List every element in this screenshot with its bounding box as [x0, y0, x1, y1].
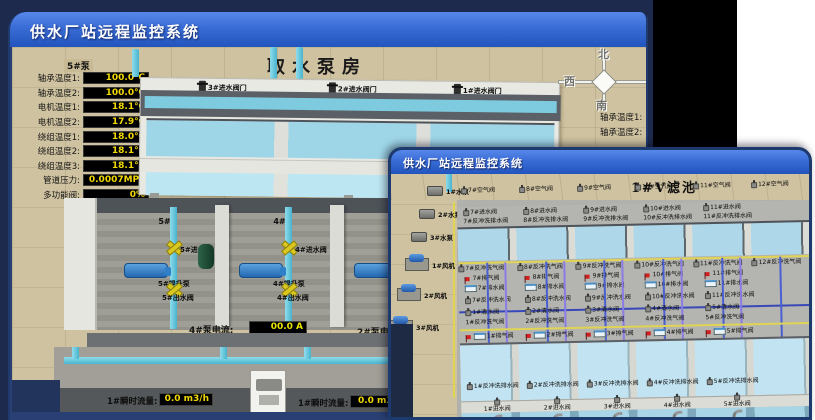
valve-item[interactable]: 5#清水阀: [705, 303, 765, 311]
outlet-valve-label: 5#出水阀: [162, 293, 194, 303]
valve-icon: [494, 400, 500, 406]
alarm-flag-icon: [585, 274, 590, 278]
valve-label: 9#空气阀: [584, 184, 611, 192]
alarm-flag-icon: [706, 330, 711, 334]
valve-label: 4#反冲洗气阀: [645, 315, 684, 323]
valve-item[interactable]: 10#排气阀: [644, 270, 704, 278]
valve-label: 7#进水阀: [470, 209, 497, 217]
pump-riser-pipe: [285, 207, 292, 329]
valve-icon: [458, 266, 464, 272]
water-pump-label: 3#水泵: [430, 232, 453, 242]
valve-icon: [645, 294, 651, 300]
valve-item[interactable]: 11#反冲洗排水阀: [703, 212, 763, 220]
panel-row: 绕组温度2: 18.1℃: [16, 144, 154, 159]
valve-label: 1#反冲洗排水阀: [474, 382, 519, 390]
valve-icon: [703, 205, 709, 211]
valve-item[interactable]: 2#清水阀: [525, 307, 585, 315]
water-tank-icon: [534, 332, 546, 339]
desktop: 供水厂站远程监控系统 取水泵房 5#泵 轴承温度1: 100.0℃ 轴承温度2:…: [0, 0, 815, 420]
valve-icon: [554, 398, 560, 404]
valve-icon: [519, 186, 525, 192]
panel-row-label: 管道压力:: [16, 174, 80, 186]
valve-item[interactable]: 8#排气阀: [524, 273, 584, 281]
motor-icon: [411, 232, 427, 242]
blower-unit[interactable]: 1#风机: [405, 258, 455, 271]
back-scene-title: 取水泵房: [267, 53, 367, 79]
air-manifold-pipe: [453, 202, 455, 398]
valve-icon: [634, 262, 640, 268]
valve-item[interactable]: 3#清水阀: [585, 305, 645, 313]
alarm-flag-icon: [525, 275, 530, 279]
valve-item[interactable]: 10#空气阀: [635, 182, 693, 190]
right-bearing-temp2-label: 轴承温度2:: [600, 126, 642, 138]
valve-label: 5#清水阀: [712, 303, 739, 311]
backwash-water-row-mid: 7#反冲洗水阀 8#反冲洗水阀 9#反冲洗水阀 10#反冲洗水阀 11#反冲洗水…: [465, 291, 765, 304]
valve-label: 8#反冲洗气阀: [524, 263, 563, 271]
alarm-flag-icon: [526, 333, 531, 337]
valve-item[interactable]: 1#排气阀: [466, 332, 526, 340]
valve-item[interactable]: 9#反冲洗排水阀: [583, 214, 643, 222]
valve-icon: [576, 263, 582, 269]
pump-riser-pipe: [170, 207, 177, 329]
valve-label: 2#排气阀: [547, 331, 574, 339]
valve-label: 8#排水阀: [538, 283, 565, 291]
elbow-pipe-icon: [612, 412, 622, 420]
valve-item[interactable]: 8#反冲洗水阀: [525, 295, 585, 303]
back-window-title: 供水厂站远程监控系统: [30, 21, 200, 42]
alarm-flag-icon: [646, 331, 651, 335]
valve-icon: [525, 308, 531, 314]
valve-label: 3#反冲洗排水阀: [594, 380, 639, 388]
valve-item[interactable]: 5#反冲洗排水阀: [707, 377, 767, 385]
valve-item[interactable]: 4#进水阀: [647, 395, 707, 409]
valve-icon: [461, 188, 467, 194]
valve-label: 11#反冲洗水阀: [712, 291, 755, 299]
valve-icon: [645, 306, 651, 312]
valve-icon: [525, 296, 531, 302]
valve-icon: [707, 379, 713, 385]
panel-row-label: 绕组温度3:: [16, 160, 80, 172]
valve-label: 9#排水阀: [598, 282, 625, 290]
valve-item[interactable]: 8#进水阀: [523, 207, 583, 215]
valve-label: 12#空气阀: [758, 180, 789, 188]
valve-label: 3#清水阀: [592, 306, 619, 314]
valve-icon: [693, 183, 699, 189]
valve-label: 11#反冲洗排水阀: [703, 212, 752, 220]
valve-label: 3#反冲洗气阀: [585, 316, 624, 324]
valve-label: 1#清水阀: [472, 309, 499, 317]
valve-icon: [517, 265, 523, 271]
panel-row-label: 轴承温度1:: [16, 72, 80, 84]
blower-icon: [405, 258, 429, 271]
valve-label: 11#进水阀: [710, 203, 741, 211]
panel-row: 绕组温度3: 18.1℃: [16, 159, 154, 174]
pipe-pillar: [296, 47, 303, 79]
valve-label: 8#反冲洗排水阀: [523, 216, 568, 224]
alarm-flag-icon: [465, 277, 470, 281]
valve-item[interactable]: 10#反冲洗排水阀: [643, 213, 703, 221]
blower-label: 1#风机: [432, 260, 455, 270]
scene-corner-shadow: [391, 324, 413, 420]
valve-label: 2#反冲洗排水阀: [534, 381, 579, 389]
valve-icon: [465, 310, 471, 316]
valve-icon: [751, 182, 757, 188]
valve-icon: [467, 384, 473, 390]
valve-item[interactable]: 11#进水阀: [703, 203, 763, 211]
valve-icon: [614, 397, 620, 403]
valve-item[interactable]: 4#清水阀: [645, 304, 705, 312]
pipe-riser: [220, 347, 227, 359]
right-bearing-temp1-label: 轴承温度1:: [600, 111, 642, 123]
valve-label: 4#清水阀: [652, 305, 679, 313]
water-tank-icon: [474, 333, 486, 340]
valve-icon: [705, 293, 711, 299]
compass: 北 西 南: [556, 49, 648, 117]
panel-row-label: 轴承温度2:: [16, 87, 80, 99]
water-tank-icon: [714, 328, 726, 335]
valve-item[interactable]: 4#反冲洗气阀: [645, 314, 705, 322]
inlet-valve-label: 4#进水阀: [295, 245, 327, 255]
water-tank-icon: [645, 281, 657, 288]
valve-label: 1#排气阀: [487, 332, 514, 340]
valve-item[interactable]: 2#反冲洗排水阀: [527, 381, 587, 389]
valve-label: 8#进水阀: [530, 207, 557, 215]
blower-unit[interactable]: 2#风机: [397, 288, 447, 301]
valve-icon: [587, 381, 593, 387]
valve-label: 4#反冲洗排水阀: [654, 378, 699, 386]
front-window-title: 供水厂站远程监控系统: [403, 155, 523, 171]
valve-item[interactable]: 4#反冲洗排水阀: [647, 378, 707, 386]
valve-icon: [527, 382, 533, 388]
valve-label: 10#排气阀: [652, 271, 683, 279]
valve-item[interactable]: 7#进水阀: [463, 208, 523, 216]
valve-label: 9#反冲洗排水阀: [583, 215, 628, 223]
water-tank-icon: [705, 280, 717, 287]
elbow-pipe-icon: [672, 411, 682, 419]
valve-item[interactable]: 9#排气阀: [584, 271, 644, 279]
valve-item[interactable]: 3#进水阀: [587, 396, 647, 410]
valve-label: 4#排气阀: [667, 328, 694, 336]
valve-item[interactable]: 11#反冲洗水阀: [705, 291, 765, 299]
flow-meter-cabinet[interactable]: [250, 370, 286, 412]
valve-item[interactable]: 3#空气阀: [587, 411, 647, 420]
valve-item[interactable]: 5#排气阀: [706, 327, 766, 335]
valve-icon: [647, 380, 653, 386]
pump-icon[interactable]: [239, 263, 283, 278]
valve-item[interactable]: 1#空气阀: [467, 414, 527, 420]
valve-item[interactable]: 1#反冲洗排水阀: [467, 382, 527, 390]
valve-item[interactable]: 5#进水阀: [707, 394, 767, 408]
valve-item[interactable]: 7#反冲洗水阀: [465, 296, 525, 304]
valve-item[interactable]: 4#空气阀: [647, 410, 707, 420]
pipe-pillar: [270, 47, 277, 79]
outlet-valve-label: 4#出水阀: [277, 293, 309, 303]
valve-item[interactable]: 1#反冲洗气阀: [465, 318, 525, 326]
pipe-riser: [72, 347, 79, 359]
pipe-pillar: [132, 49, 139, 77]
valve-icon: [643, 206, 649, 212]
flow-left-label: 1#瞬时流量:: [107, 395, 157, 407]
valve-item[interactable]: 10#进水阀: [643, 204, 703, 212]
pump-bay: 4#进水阀 4#提升泵 4#出水阀: [227, 207, 342, 333]
valve-item[interactable]: 8#空气阀: [519, 185, 577, 193]
valve-item[interactable]: 3#反冲洗排水阀: [587, 379, 647, 387]
valve-item[interactable]: 11#空气阀: [693, 181, 751, 189]
alarm-flag-icon: [644, 273, 649, 277]
valve-label: 2#清水阀: [532, 307, 559, 315]
panel-row: 轴承温度2: 100.0℃: [16, 86, 154, 101]
hall-left-wall: [64, 198, 97, 330]
valve-label: 10#反冲洗排水阀: [643, 213, 692, 221]
front-window-titlebar[interactable]: 供水厂站远程监控系统: [391, 150, 809, 174]
valve-item[interactable]: 12#空气阀: [751, 180, 809, 188]
valve-label: 8#空气阀: [526, 185, 553, 193]
alarm-flag-icon: [704, 272, 709, 276]
pressure-vessel-icon: [198, 244, 214, 269]
valve-label: 9#排气阀: [592, 272, 619, 280]
water-pump-unit[interactable]: 3#水泵: [411, 232, 453, 242]
valve-icon: [693, 261, 699, 267]
filter-cells-lower: [460, 336, 809, 401]
valve-label: 10#空气阀: [642, 183, 673, 191]
alarm-flag-icon: [586, 332, 591, 336]
filter-grid: 7#进水阀 8#进水阀 9#进水阀 10#进水阀 11#进水阀: [457, 200, 809, 420]
blower-label: 2#风机: [424, 290, 447, 300]
elbow-pipe-icon: [552, 413, 562, 420]
valve-label: 5#反冲洗排水阀: [714, 377, 759, 385]
valve-label: 7#反冲洗排水阀: [463, 217, 508, 225]
panel-row: 电机温度2: 17.9℃: [16, 115, 154, 130]
panel-row-label: 绕组温度2:: [16, 145, 80, 157]
valve-label: 3#排气阀: [607, 330, 634, 338]
motor-icon: [427, 186, 443, 196]
valve-item[interactable]: 11#排气阀: [704, 269, 764, 277]
front-window: 供水厂站远程监控系统 1#V滤池 1#水泵 2#水泵 3#水泵: [388, 147, 812, 420]
blower-label: 3#风机: [416, 322, 439, 332]
valve-item[interactable]: 10#反冲洗水阀: [645, 292, 705, 300]
valve-icon: [523, 208, 529, 214]
valve-item[interactable]: 7#空气阀: [461, 186, 519, 194]
valve-item[interactable]: 1#进水阀: [467, 399, 527, 413]
valve-item[interactable]: 8#排水阀: [525, 283, 585, 291]
valve-icon: [635, 184, 641, 190]
valve-item[interactable]: 8#反冲洗排水阀: [523, 216, 583, 224]
valve-label: 11#空气阀: [700, 182, 731, 190]
flow-right-label: 1#瞬时流量:: [298, 397, 348, 409]
water-tank-icon: [525, 284, 537, 291]
back-window-titlebar[interactable]: 供水厂站远程监控系统: [10, 12, 646, 47]
panel-row-label: 电机温度1:: [16, 101, 80, 113]
valve-icon: [583, 207, 589, 213]
valve-item[interactable]: 10#排水阀: [645, 280, 705, 288]
valve-label: 9#反冲洗水阀: [592, 294, 631, 302]
panel-row: 电机温度1: 18.1℃: [16, 100, 154, 115]
valve-item[interactable]: 7#反冲洗排水阀: [463, 217, 523, 225]
compass-north-label: 北: [598, 47, 609, 62]
valve-item[interactable]: 3#反冲洗气阀: [585, 315, 645, 323]
valve-icon: [465, 298, 471, 304]
water-tank-icon: [654, 329, 666, 336]
panel-row-label: 电机温度2:: [16, 116, 80, 128]
compass-west-label: 西: [564, 73, 575, 89]
valve-item[interactable]: 5#空气阀: [707, 409, 767, 420]
valve-item[interactable]: 11#排水阀: [705, 279, 765, 287]
water-pump-unit[interactable]: 2#水泵: [419, 209, 461, 219]
valve-item[interactable]: 9#反冲洗水阀: [585, 293, 645, 301]
valve-item[interactable]: 5#反冲洗气阀: [705, 313, 765, 321]
panel-row: 管道压力: 0.0007MPa: [16, 173, 154, 188]
valve-label: 7#反冲洗气阀: [465, 264, 504, 272]
valve-item[interactable]: 1#清水阀: [465, 308, 525, 316]
pump-bay: 5#进水阀 5#提升泵 5#出水阀: [112, 207, 227, 333]
valve-item[interactable]: 2#排气阀: [526, 331, 586, 339]
valve-label: 10#进水阀: [650, 205, 681, 213]
valve-icon: [752, 260, 758, 266]
valve-icon: [463, 210, 469, 216]
valve-item[interactable]: 7#排气阀: [464, 274, 524, 282]
panel-row: 绕组温度1: 18.0℃: [16, 129, 154, 144]
valve-label: 5#反冲洗气阀: [705, 313, 744, 321]
flow-left-value: 0.0 m3/h: [159, 393, 213, 406]
valve-icon: [734, 394, 740, 400]
pump5-data-panel: 轴承温度1: 100.0℃ 轴承温度2: 100.0℃ 电机温度1: 18.1℃…: [16, 71, 154, 202]
motor-icon: [419, 209, 435, 219]
valve-item[interactable]: 2#进水阀: [527, 398, 587, 412]
valve-label: 9#进水阀: [590, 206, 617, 214]
valve-label: 7#空气阀: [468, 187, 495, 195]
scene-corner-shadow: [12, 380, 60, 412]
blower-icon: [397, 288, 421, 301]
valve-item[interactable]: 9#空气阀: [577, 184, 635, 192]
valve-icon: [585, 295, 591, 301]
elbow-pipe-icon: [732, 409, 742, 417]
valve-item[interactable]: 9#进水阀: [583, 205, 643, 213]
valve-icon: [705, 305, 711, 311]
filter-pool-scene: 1#V滤池 1#水泵 2#水泵 3#水泵: [391, 174, 809, 420]
panel-row-label: 绕组温度1:: [16, 131, 80, 143]
water-tank-icon: [585, 282, 597, 289]
valve-label: 7#排水阀: [478, 284, 505, 292]
valve-label: 9#反冲洗气阀: [583, 262, 622, 270]
valve-label: 2#反冲洗气阀: [525, 317, 564, 325]
valve-item[interactable]: 4#排气阀: [646, 328, 706, 336]
discharge-pipe: [64, 357, 394, 364]
valve-item[interactable]: 2#反冲洗气阀: [525, 317, 585, 325]
valve-item[interactable]: 3#排气阀: [586, 329, 646, 337]
valve-icon: [674, 396, 680, 402]
valve-item[interactable]: 9#排水阀: [585, 281, 645, 289]
valve-item[interactable]: 2#空气阀: [527, 413, 587, 420]
valve-label: 5#排气阀: [727, 327, 754, 335]
valve-icon: [585, 307, 591, 313]
valve-label: 1#反冲洗气阀: [465, 318, 504, 326]
valve-item[interactable]: 7#排水阀: [465, 284, 525, 292]
pipe-riser: [304, 347, 311, 359]
water-tank-icon: [594, 330, 606, 337]
elbow-pipe-icon: [492, 414, 502, 420]
valve-icon: [577, 185, 583, 191]
clear-water-pipe: [779, 257, 783, 341]
valve-label: 10#反冲洗水阀: [652, 292, 695, 300]
water-tank-icon: [465, 285, 477, 292]
pump-icon[interactable]: [124, 263, 168, 278]
compass-star: [591, 69, 616, 94]
alarm-flag-icon: [466, 335, 471, 339]
